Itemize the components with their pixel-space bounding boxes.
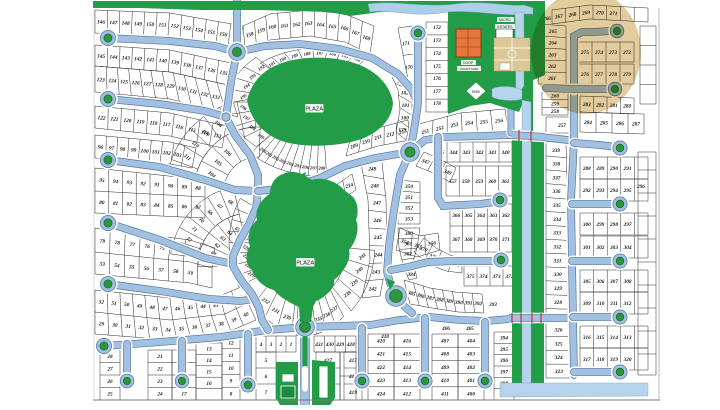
svg-text:406: 406 xyxy=(441,326,450,332)
svg-text:COURTYARD: COURTYARD xyxy=(460,67,480,71)
svg-text:8: 8 xyxy=(230,392,233,398)
svg-text:409: 409 xyxy=(440,365,449,371)
svg-text:350: 350 xyxy=(404,184,413,190)
svg-text:33: 33 xyxy=(151,326,158,333)
svg-text:128: 128 xyxy=(155,82,164,89)
svg-text:142: 142 xyxy=(134,56,143,63)
svg-text:382: 382 xyxy=(403,252,412,258)
svg-text:390: 390 xyxy=(454,300,464,307)
svg-text:245: 245 xyxy=(373,235,382,241)
svg-text:246: 246 xyxy=(373,218,382,224)
svg-text:311: 311 xyxy=(609,301,618,307)
svg-text:50: 50 xyxy=(124,302,130,309)
svg-text:418: 418 xyxy=(380,334,389,340)
svg-text:316: 316 xyxy=(582,335,591,341)
svg-text:323: 323 xyxy=(554,369,563,375)
svg-text:32: 32 xyxy=(137,325,144,332)
svg-text:258: 258 xyxy=(550,109,559,115)
svg-text:290: 290 xyxy=(609,166,618,172)
svg-text:243: 243 xyxy=(371,269,380,275)
svg-text:25: 25 xyxy=(106,392,113,398)
svg-text:424: 424 xyxy=(376,391,385,397)
svg-text:342: 342 xyxy=(475,150,484,156)
svg-text:31: 31 xyxy=(124,324,131,331)
svg-text:53: 53 xyxy=(99,261,105,268)
svg-text:141: 141 xyxy=(146,57,155,64)
svg-text:421: 421 xyxy=(376,352,385,358)
svg-text:12: 12 xyxy=(228,340,234,346)
svg-text:298: 298 xyxy=(609,222,618,228)
svg-text:337: 337 xyxy=(551,175,560,181)
svg-text:17: 17 xyxy=(181,392,187,398)
svg-text:324: 324 xyxy=(554,355,563,361)
svg-text:22: 22 xyxy=(156,367,163,373)
svg-text:124: 124 xyxy=(108,78,117,85)
svg-text:174: 174 xyxy=(433,51,441,57)
svg-text:146: 146 xyxy=(97,19,106,25)
svg-text:83: 83 xyxy=(140,202,146,208)
svg-text:178: 178 xyxy=(433,101,441,107)
svg-text:393: 393 xyxy=(488,302,497,308)
svg-text:299: 299 xyxy=(595,222,604,228)
svg-text:MICRO: MICRO xyxy=(499,18,511,22)
svg-text:410: 410 xyxy=(440,378,449,384)
svg-text:91: 91 xyxy=(154,182,160,189)
svg-text:147: 147 xyxy=(109,20,118,26)
svg-text:34: 34 xyxy=(164,327,171,334)
svg-text:417: 417 xyxy=(348,358,357,364)
svg-text:296: 296 xyxy=(636,184,645,190)
svg-text:84: 84 xyxy=(154,203,160,209)
svg-text:303: 303 xyxy=(609,245,618,251)
svg-text:380: 380 xyxy=(404,231,413,237)
svg-text:90: 90 xyxy=(168,183,174,190)
svg-text:413: 413 xyxy=(402,378,411,384)
svg-text:126: 126 xyxy=(131,80,140,87)
svg-text:164: 164 xyxy=(316,22,325,29)
svg-text:27: 27 xyxy=(106,367,113,373)
svg-text:170: 170 xyxy=(405,64,414,71)
svg-text:284: 284 xyxy=(583,120,592,126)
svg-text:88: 88 xyxy=(195,186,201,193)
svg-text:49: 49 xyxy=(135,303,142,310)
svg-text:325: 325 xyxy=(554,341,563,347)
svg-text:121: 121 xyxy=(110,116,119,123)
svg-text:51: 51 xyxy=(111,301,117,308)
svg-text:315: 315 xyxy=(595,335,604,341)
svg-text:80: 80 xyxy=(99,200,105,206)
svg-text:362: 362 xyxy=(501,213,510,219)
svg-text:94: 94 xyxy=(113,179,119,186)
svg-text:364: 364 xyxy=(476,213,485,219)
svg-text:7: 7 xyxy=(265,390,268,396)
svg-text:96: 96 xyxy=(98,145,104,151)
svg-text:123: 123 xyxy=(97,77,106,84)
svg-text:30: 30 xyxy=(111,322,118,329)
svg-text:318: 318 xyxy=(595,357,604,363)
svg-text:207: 207 xyxy=(309,166,318,172)
svg-text:288: 288 xyxy=(582,166,591,172)
svg-text:293: 293 xyxy=(595,188,604,194)
svg-text:285: 285 xyxy=(599,120,608,126)
svg-text:45: 45 xyxy=(187,305,194,311)
svg-text:171: 171 xyxy=(402,40,411,47)
svg-text:93: 93 xyxy=(126,180,132,187)
svg-text:370: 370 xyxy=(488,237,497,243)
svg-text:163: 163 xyxy=(304,21,313,27)
svg-text:314: 314 xyxy=(609,335,618,341)
svg-text:394: 394 xyxy=(499,336,508,342)
svg-text:172: 172 xyxy=(433,25,441,31)
svg-text:89: 89 xyxy=(181,184,187,191)
svg-text:149: 149 xyxy=(134,21,143,27)
svg-text:301: 301 xyxy=(582,245,591,251)
svg-text:161: 161 xyxy=(280,23,289,30)
svg-text:328: 328 xyxy=(553,300,562,306)
svg-text:24: 24 xyxy=(156,392,163,398)
svg-text:102: 102 xyxy=(162,150,171,157)
svg-text:148: 148 xyxy=(122,21,131,27)
svg-text:118: 118 xyxy=(149,120,158,127)
svg-text:373: 373 xyxy=(492,274,501,280)
svg-text:82: 82 xyxy=(127,201,133,207)
svg-text:396: 396 xyxy=(499,358,508,364)
svg-text:363: 363 xyxy=(488,213,497,219)
svg-text:411: 411 xyxy=(440,391,449,397)
svg-text:PLAZA: PLAZA xyxy=(305,107,323,113)
svg-text:55: 55 xyxy=(129,264,135,271)
svg-text:280: 280 xyxy=(622,103,632,109)
svg-text:256: 256 xyxy=(494,118,504,125)
svg-text:254: 254 xyxy=(464,120,474,127)
svg-text:6: 6 xyxy=(265,374,268,380)
svg-text:37: 37 xyxy=(204,323,211,330)
svg-text:47: 47 xyxy=(161,306,168,313)
svg-text:332: 332 xyxy=(552,245,561,251)
svg-text:339: 339 xyxy=(551,148,560,154)
svg-text:15: 15 xyxy=(206,369,212,375)
svg-text:358: 358 xyxy=(461,179,470,185)
svg-text:302: 302 xyxy=(595,245,604,251)
svg-text:57: 57 xyxy=(158,267,164,274)
svg-text:255: 255 xyxy=(479,119,489,126)
svg-text:248: 248 xyxy=(370,184,379,190)
svg-text:352: 352 xyxy=(404,206,413,212)
svg-text:415: 415 xyxy=(402,352,411,358)
svg-text:242: 242 xyxy=(368,286,377,292)
svg-text:367: 367 xyxy=(451,237,460,243)
svg-text:100: 100 xyxy=(140,148,149,155)
svg-text:307: 307 xyxy=(609,279,618,285)
svg-text:151: 151 xyxy=(158,22,167,28)
svg-text:419: 419 xyxy=(348,390,357,396)
svg-text:175: 175 xyxy=(433,64,441,70)
svg-text:81: 81 xyxy=(113,201,119,207)
svg-text:392: 392 xyxy=(473,301,483,308)
svg-text:309: 309 xyxy=(582,301,591,307)
svg-text:428: 428 xyxy=(346,342,355,348)
svg-text:414: 414 xyxy=(402,365,411,371)
svg-text:PARK: PARK xyxy=(472,90,481,94)
svg-text:360: 360 xyxy=(487,179,496,185)
svg-text:292: 292 xyxy=(582,188,591,194)
svg-text:36: 36 xyxy=(191,324,198,331)
svg-text:310: 310 xyxy=(595,301,604,307)
svg-text:407: 407 xyxy=(440,339,449,345)
svg-text:5: 5 xyxy=(265,358,268,364)
svg-text:127: 127 xyxy=(143,81,152,88)
svg-text:13: 13 xyxy=(206,347,212,353)
svg-text:2: 2 xyxy=(279,342,283,348)
svg-text:14: 14 xyxy=(206,358,212,364)
svg-text:247: 247 xyxy=(372,201,381,207)
svg-text:422: 422 xyxy=(376,365,385,371)
svg-text:319: 319 xyxy=(609,357,618,363)
svg-text:145: 145 xyxy=(97,54,106,61)
svg-text:COOP: COOP xyxy=(463,61,474,65)
svg-text:329: 329 xyxy=(553,286,562,292)
svg-text:405: 405 xyxy=(465,326,474,332)
svg-text:23: 23 xyxy=(156,379,163,385)
svg-text:11: 11 xyxy=(228,353,233,359)
svg-text:416: 416 xyxy=(402,339,411,345)
svg-text:312: 312 xyxy=(623,301,632,307)
svg-text:429: 429 xyxy=(335,342,344,348)
svg-text:297: 297 xyxy=(623,222,632,228)
svg-text:187: 187 xyxy=(316,52,324,57)
svg-text:331: 331 xyxy=(553,258,562,264)
svg-text:287: 287 xyxy=(631,121,640,127)
svg-text:308: 308 xyxy=(623,279,632,285)
svg-text:98: 98 xyxy=(120,147,126,153)
svg-text:295: 295 xyxy=(623,188,632,194)
svg-text:35: 35 xyxy=(178,326,185,333)
svg-text:374: 374 xyxy=(479,274,488,280)
svg-text:338: 338 xyxy=(551,162,560,168)
svg-text:317: 317 xyxy=(582,357,591,363)
svg-text:431: 431 xyxy=(314,342,323,348)
svg-text:375: 375 xyxy=(466,274,475,280)
svg-text:412: 412 xyxy=(402,391,411,397)
svg-text:397: 397 xyxy=(499,370,508,376)
svg-text:46: 46 xyxy=(174,306,181,312)
svg-text:10: 10 xyxy=(228,366,234,372)
svg-text:249: 249 xyxy=(367,166,376,172)
svg-text:384: 384 xyxy=(406,272,415,278)
svg-text:9: 9 xyxy=(230,379,233,385)
svg-text:120: 120 xyxy=(123,118,132,125)
svg-text:58: 58 xyxy=(173,269,179,276)
svg-text:48: 48 xyxy=(148,305,155,312)
svg-text:369: 369 xyxy=(476,237,485,243)
svg-text:86: 86 xyxy=(182,204,188,210)
svg-text:366: 366 xyxy=(451,213,460,219)
svg-text:26: 26 xyxy=(106,379,113,385)
svg-text:179: 179 xyxy=(398,128,406,134)
svg-text:177: 177 xyxy=(433,89,441,95)
svg-text:173: 173 xyxy=(433,38,441,44)
svg-text:PLAZA: PLAZA xyxy=(296,261,314,267)
svg-text:304: 304 xyxy=(623,245,632,251)
svg-text:29: 29 xyxy=(98,321,105,328)
svg-text:333: 333 xyxy=(552,231,561,237)
svg-text:368: 368 xyxy=(464,237,473,243)
svg-text:150: 150 xyxy=(146,22,155,28)
svg-text:3: 3 xyxy=(269,342,273,348)
svg-text:286: 286 xyxy=(615,121,624,127)
svg-text:357: 357 xyxy=(448,179,457,185)
svg-text:423: 423 xyxy=(376,378,385,384)
svg-text:16: 16 xyxy=(206,381,212,387)
svg-text:180: 180 xyxy=(401,116,409,122)
svg-text:336: 336 xyxy=(552,189,561,195)
svg-text:119: 119 xyxy=(136,119,145,126)
svg-text:313: 313 xyxy=(623,335,632,341)
svg-text:1: 1 xyxy=(290,342,293,348)
svg-text:402: 402 xyxy=(466,365,475,371)
svg-text:400: 400 xyxy=(466,391,475,397)
svg-text:92: 92 xyxy=(140,181,146,188)
svg-text:371: 371 xyxy=(501,237,510,243)
svg-text:408: 408 xyxy=(440,352,449,358)
svg-text:330: 330 xyxy=(553,272,562,278)
svg-text:353: 353 xyxy=(404,217,413,223)
svg-text:344: 344 xyxy=(449,150,458,156)
svg-text:117: 117 xyxy=(162,122,171,129)
svg-text:404: 404 xyxy=(466,339,475,345)
svg-text:ESTATES: ESTATES xyxy=(498,25,514,29)
svg-text:381: 381 xyxy=(403,242,412,248)
svg-text:95: 95 xyxy=(99,178,105,185)
svg-text:181: 181 xyxy=(402,103,410,109)
svg-text:359: 359 xyxy=(474,179,483,185)
svg-text:4: 4 xyxy=(259,342,263,348)
svg-text:306: 306 xyxy=(595,279,604,285)
svg-text:21: 21 xyxy=(156,354,163,360)
svg-text:129: 129 xyxy=(166,83,175,90)
svg-text:430: 430 xyxy=(325,342,334,348)
svg-text:320: 320 xyxy=(623,357,632,363)
svg-text:343: 343 xyxy=(462,150,471,156)
svg-text:401: 401 xyxy=(466,378,475,384)
svg-text:125: 125 xyxy=(120,79,129,86)
svg-text:176: 176 xyxy=(433,76,441,82)
svg-text:257: 257 xyxy=(557,123,566,129)
svg-text:52: 52 xyxy=(98,299,104,306)
svg-text:291: 291 xyxy=(623,166,632,172)
svg-text:365: 365 xyxy=(464,213,473,219)
svg-text:44: 44 xyxy=(199,304,206,310)
svg-text:54: 54 xyxy=(114,263,120,270)
svg-text:326: 326 xyxy=(553,328,562,334)
svg-text:289: 289 xyxy=(595,166,604,172)
svg-text:395: 395 xyxy=(499,347,508,353)
svg-text:56: 56 xyxy=(143,266,149,273)
svg-text:143: 143 xyxy=(122,55,131,62)
svg-text:140: 140 xyxy=(159,58,168,65)
svg-text:85: 85 xyxy=(168,203,174,209)
svg-text:341: 341 xyxy=(488,150,497,156)
svg-text:294: 294 xyxy=(609,188,618,194)
svg-text:351: 351 xyxy=(404,195,413,201)
svg-text:122: 122 xyxy=(97,115,106,122)
svg-text:101: 101 xyxy=(151,149,160,156)
svg-text:305: 305 xyxy=(582,279,591,285)
svg-text:244: 244 xyxy=(373,252,382,258)
svg-text:340: 340 xyxy=(501,150,510,156)
svg-text:300: 300 xyxy=(582,222,591,228)
svg-text:335: 335 xyxy=(552,203,561,209)
svg-text:165: 165 xyxy=(328,24,337,31)
svg-text:144: 144 xyxy=(109,54,118,61)
svg-text:391: 391 xyxy=(463,300,473,307)
svg-text:403: 403 xyxy=(466,352,475,358)
svg-text:38: 38 xyxy=(217,321,224,328)
svg-text:99: 99 xyxy=(131,147,137,153)
svg-text:361: 361 xyxy=(500,179,509,185)
svg-text:162: 162 xyxy=(292,22,301,29)
svg-text:334: 334 xyxy=(552,217,561,223)
